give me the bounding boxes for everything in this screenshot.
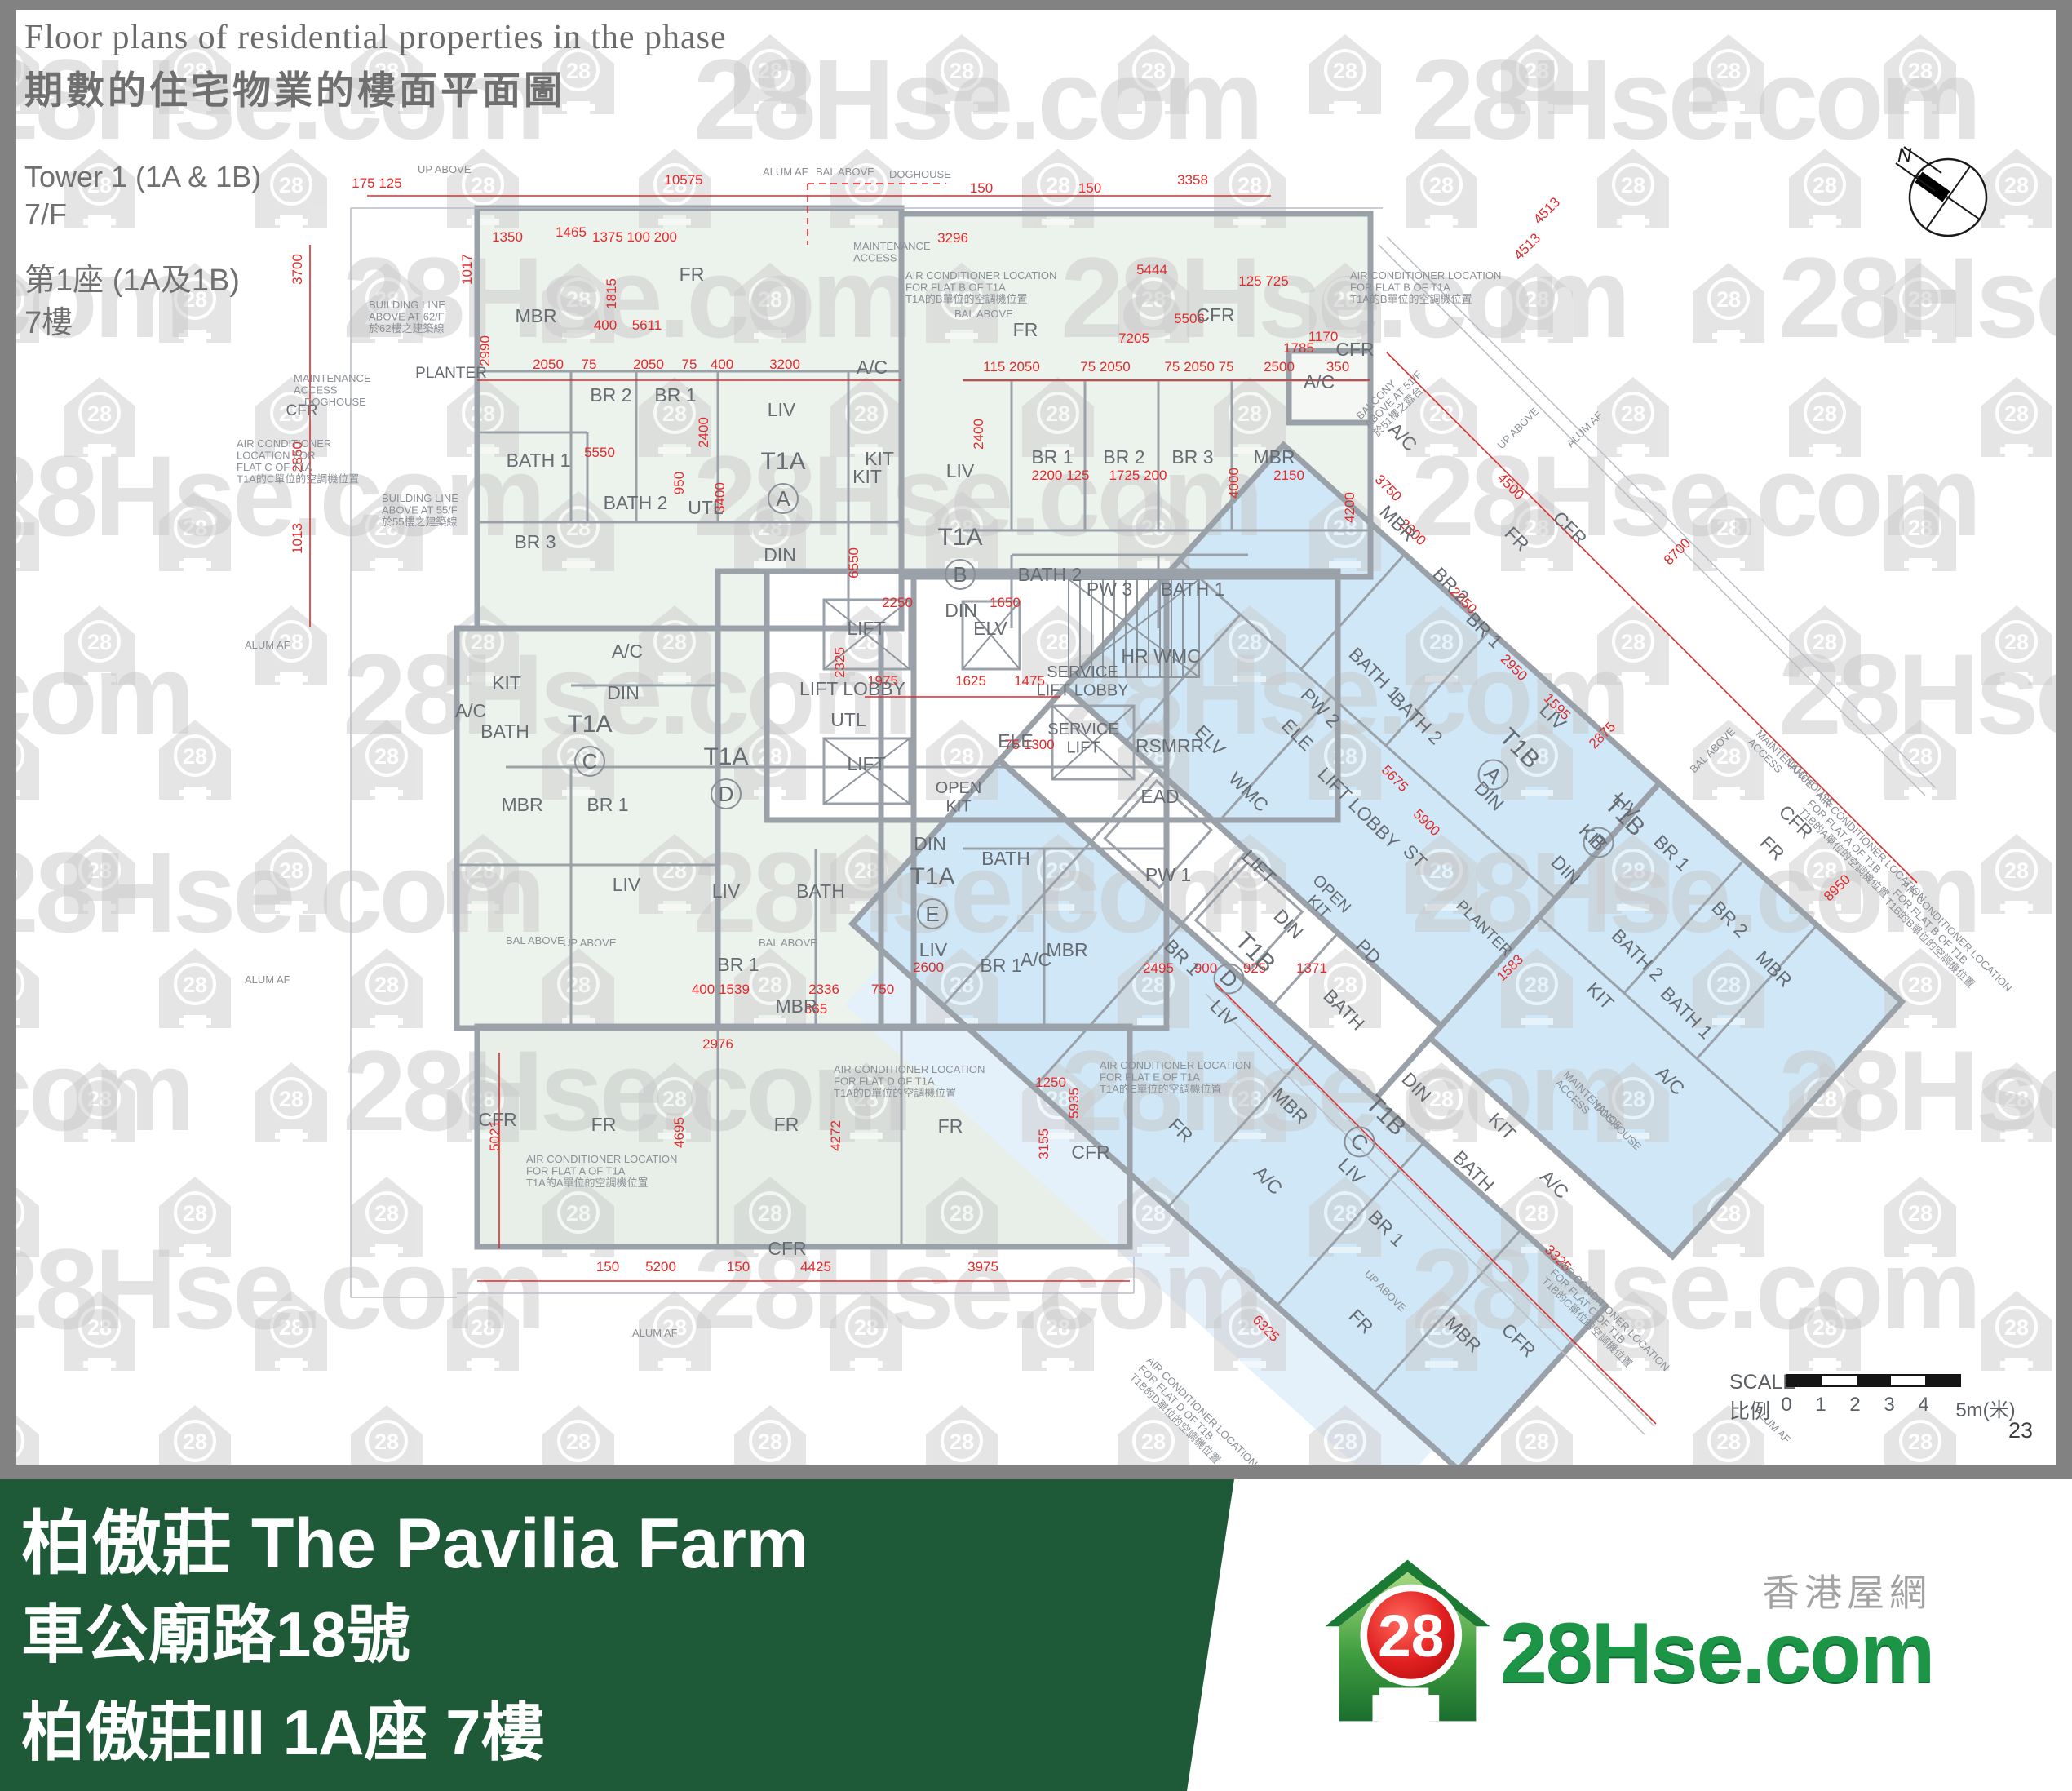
room-label: FR bbox=[591, 1114, 617, 1135]
watermark-house-icon: 28 bbox=[1981, 149, 2052, 228]
dim-label: 1815 bbox=[604, 278, 619, 309]
dim-label: 400 bbox=[594, 317, 617, 333]
dim-label: 1539 bbox=[719, 982, 750, 997]
watermark-house-number: 28 bbox=[2004, 1315, 2029, 1340]
watermark-brand-text: 28Hse.com bbox=[0, 828, 542, 956]
rect bbox=[83, 1361, 116, 1368]
rect bbox=[1329, 1247, 1361, 1253]
watermark-house-number: 28 bbox=[1237, 401, 1262, 426]
dim-label: 3700 bbox=[290, 254, 305, 285]
dim-label: 5550 bbox=[584, 445, 615, 460]
rect bbox=[1425, 1361, 1458, 1368]
room-label: BATH bbox=[981, 848, 1030, 869]
dim-label: 3975 bbox=[967, 1259, 998, 1275]
note-label: BAL ABOVE bbox=[816, 166, 874, 178]
room-label: LIV bbox=[712, 880, 741, 902]
dim-label: 4695 bbox=[671, 1117, 687, 1148]
rect bbox=[562, 561, 595, 568]
dim-label: 5200 bbox=[645, 1259, 676, 1275]
watermark-house-number: 28 bbox=[471, 173, 495, 197]
rect bbox=[658, 1361, 691, 1368]
rect bbox=[1712, 790, 1745, 796]
note-label: DOGHOUSE bbox=[304, 396, 366, 408]
rect bbox=[1712, 333, 1745, 339]
room-label: BATH 1 bbox=[507, 450, 571, 471]
watermark-house-number: 28 bbox=[1525, 973, 1549, 997]
room-label: BR 1 bbox=[717, 954, 759, 975]
unit-badge-tower: T1A bbox=[703, 743, 748, 770]
dim-label: 4200 bbox=[1342, 492, 1357, 523]
scale-label-zh: 比例 bbox=[1729, 1395, 1770, 1425]
room-label: PW 3 bbox=[1087, 579, 1132, 600]
watermark-brand-text: 28Hse.com bbox=[343, 1026, 909, 1155]
watermark-brand-text: 28Hse.com bbox=[1411, 432, 1977, 560]
dim-label: 2495 bbox=[1143, 960, 1174, 976]
room-label: KIT bbox=[492, 672, 521, 694]
watermark-house-number: 28 bbox=[1716, 1430, 1741, 1454]
rect bbox=[2000, 1361, 2033, 1368]
watermark-house-number: 28 bbox=[950, 1201, 974, 1226]
dim-label: 75 2050 75 bbox=[1164, 359, 1233, 375]
watermark-house-icon: 28 bbox=[1309, 34, 1381, 114]
room-label: EAD bbox=[1140, 786, 1179, 807]
watermark-house-number: 28 bbox=[1141, 1430, 1166, 1454]
dim-label: 1017 bbox=[459, 254, 475, 285]
unit-badge-tower: T1A bbox=[910, 863, 954, 890]
dim-label: 75 2050 bbox=[1080, 359, 1130, 375]
dim-label: 75 bbox=[582, 357, 597, 372]
28hse-logo[interactable]: 28 28Hse.com bbox=[1320, 1539, 2054, 1743]
dim-label: 7205 bbox=[1118, 330, 1149, 346]
rect bbox=[945, 333, 978, 339]
rect bbox=[275, 219, 308, 225]
watermark-brand-text: 28Hse.com bbox=[1411, 35, 1977, 163]
room-label: BR 2 bbox=[590, 384, 631, 406]
unit-badge-flat: B bbox=[953, 562, 967, 587]
rect bbox=[275, 1133, 308, 1139]
unit-badge-flat: E bbox=[925, 902, 939, 926]
room-label: UTL bbox=[830, 709, 866, 730]
watermark-house-number: 28 bbox=[471, 401, 495, 426]
rect bbox=[1712, 561, 1745, 568]
watermark-house-number: 28 bbox=[566, 1430, 591, 1454]
note-label: BUILDING LINEABOVE AT 55/F於55樓之建築線 bbox=[382, 492, 458, 528]
room-label: FR bbox=[1013, 319, 1038, 340]
watermark-house-number: 28 bbox=[1908, 1201, 1933, 1226]
watermark-house-number: 28 bbox=[566, 973, 591, 997]
watermark-brand-text: 28Hse.com bbox=[0, 1225, 542, 1353]
dim-label: 150 bbox=[970, 180, 993, 196]
watermark-house-number: 28 bbox=[1046, 173, 1070, 197]
room-label: FR bbox=[938, 1115, 963, 1137]
room-label: LIV bbox=[919, 939, 948, 960]
room-label: BATH bbox=[796, 880, 845, 902]
watermark-house-number: 28 bbox=[1333, 59, 1357, 83]
unit-badge-flat: A bbox=[776, 486, 790, 511]
room-label: A/C bbox=[857, 357, 888, 378]
rect bbox=[658, 904, 691, 911]
watermark-house-icon: 28 bbox=[351, 948, 423, 1028]
note-label: ALUM AF bbox=[245, 639, 290, 651]
watermark-house-number: 28 bbox=[1333, 1430, 1357, 1454]
watermark-house-number: 28 bbox=[1046, 401, 1070, 426]
rect bbox=[1521, 790, 1553, 796]
compass-north-label: N bbox=[1897, 144, 1912, 166]
dim-label: 125 725 bbox=[1238, 273, 1288, 289]
watermark-house-number: 28 bbox=[374, 973, 399, 997]
watermark-house-number: 28 bbox=[1813, 401, 1837, 426]
rect bbox=[1233, 219, 1266, 225]
dim-label: 950 bbox=[671, 472, 687, 494]
room-label: FR bbox=[774, 1114, 799, 1135]
dim-label: 3358 bbox=[1177, 172, 1208, 188]
rect bbox=[179, 790, 211, 796]
rect bbox=[1809, 1361, 1841, 1368]
watermark-house-icon: 28 bbox=[255, 1062, 327, 1142]
watermark-house-number: 28 bbox=[854, 401, 879, 426]
watermark-house-number: 28 bbox=[1237, 173, 1262, 197]
watermark-house-number: 28 bbox=[1716, 973, 1741, 997]
room-label: WMC bbox=[1153, 645, 1200, 667]
watermark-house-number: 28 bbox=[1621, 401, 1645, 426]
room-label: PW 1 bbox=[1145, 864, 1191, 885]
room-label: CFR bbox=[768, 1238, 806, 1259]
watermark-house-number: 28 bbox=[662, 858, 687, 883]
page-number: 23 bbox=[2008, 1418, 2033, 1443]
dim-label: 2990 bbox=[477, 335, 493, 366]
dim-label: 2500 bbox=[1264, 359, 1295, 375]
note-label: ALUM AF bbox=[763, 166, 808, 178]
room-label: MBR bbox=[775, 995, 817, 1017]
room-label: DIN bbox=[764, 544, 796, 565]
unit-badge-flat: D bbox=[719, 782, 734, 806]
note-label: ALUM AF bbox=[632, 1327, 678, 1339]
room-label: BR 3 bbox=[1171, 446, 1213, 468]
note-label: UP ABOVE bbox=[418, 163, 472, 175]
scale-ticks: 0 1 2 3 4 5m(米) bbox=[1769, 1394, 2030, 1422]
watermark-house-number: 28 bbox=[1429, 401, 1454, 426]
room-label: BR 1 bbox=[1031, 446, 1073, 468]
watermark-house-number: 28 bbox=[1525, 1201, 1549, 1226]
room-label: ELV bbox=[973, 618, 1007, 639]
dim-label: 1725 200 bbox=[1109, 468, 1167, 483]
watermark-house-number: 28 bbox=[1525, 1430, 1549, 1454]
rect bbox=[658, 219, 691, 225]
property-address: 車公廟路18號 bbox=[21, 1584, 410, 1675]
rect bbox=[1617, 219, 1649, 225]
dim-label: 1375 100 200 bbox=[592, 229, 677, 245]
dim-label: 2200 125 bbox=[1032, 468, 1090, 483]
watermark-house-number: 28 bbox=[1429, 173, 1454, 197]
rect bbox=[2000, 219, 2033, 225]
rect bbox=[1042, 219, 1074, 225]
dim-label: 3296 bbox=[937, 230, 968, 246]
note-label: UP ABOVE bbox=[563, 937, 617, 949]
rect bbox=[562, 104, 595, 111]
watermark-house-number: 28 bbox=[2004, 173, 2029, 197]
room-label: MBR bbox=[1046, 939, 1087, 960]
watermark-house-number: 28 bbox=[279, 173, 303, 197]
dim-label: 2600 bbox=[913, 960, 944, 975]
room-label: CFR bbox=[1196, 304, 1234, 326]
dim-label: 2400 bbox=[971, 419, 986, 450]
dim-label: 1650 bbox=[990, 595, 1021, 610]
watermark-house-number: 28 bbox=[566, 59, 591, 83]
dim-label: 750 bbox=[871, 982, 894, 997]
room-label: BR 2 bbox=[1103, 446, 1144, 468]
dim-label: 1250 bbox=[1035, 1075, 1066, 1090]
note-label: ALUM AF bbox=[245, 973, 290, 986]
scale-tick: 1 bbox=[1804, 1394, 1838, 1422]
watermark-house-number: 28 bbox=[374, 1201, 399, 1226]
unit-badge-flat: C bbox=[582, 749, 598, 774]
page-title-zh: 期數的住宅物業的樓面平面圖 bbox=[24, 59, 565, 115]
watermark-house-icon: 28 bbox=[1981, 834, 2052, 914]
room-label: BATH 2 bbox=[1018, 564, 1082, 585]
room-label: LIFT bbox=[847, 753, 885, 774]
dim-label: 6550 bbox=[846, 547, 861, 579]
watermark-house-number: 28 bbox=[1716, 287, 1741, 312]
rect bbox=[179, 1018, 211, 1025]
watermark-brand-text: 28Hse.com bbox=[693, 35, 1260, 163]
room-label: BATH 2 bbox=[604, 492, 668, 513]
dim-label: 1371 bbox=[1296, 960, 1327, 976]
dim-label: 5611 bbox=[632, 317, 662, 333]
dim-label: 10575 bbox=[664, 172, 702, 188]
watermark-house-number: 28 bbox=[183, 1201, 207, 1226]
room-label: A/C bbox=[1304, 371, 1335, 392]
watermark-house-number: 28 bbox=[1813, 173, 1837, 197]
property-block-floor: 柏傲莊III 1A座 7樓 bbox=[21, 1682, 544, 1773]
room-label: HR bbox=[1121, 645, 1148, 667]
room-label: LIV bbox=[613, 874, 641, 895]
room-label: A/C bbox=[455, 700, 486, 721]
dim-label: 400 bbox=[692, 982, 715, 997]
watermark-house-icon: 28 bbox=[1981, 377, 2052, 457]
dim-label: 5444 bbox=[1136, 262, 1167, 277]
dim-label: 2050 bbox=[633, 357, 664, 372]
dim-label: 4000 bbox=[1226, 468, 1242, 499]
dim-label: 150 bbox=[1078, 180, 1101, 196]
rect bbox=[850, 1361, 883, 1368]
rect bbox=[83, 219, 116, 225]
rect bbox=[1329, 104, 1361, 111]
watermark-house-number: 28 bbox=[1908, 1430, 1933, 1454]
floor-label: 7/F bbox=[24, 197, 67, 232]
note-label: BUILDING LINEABOVE AT 62/F於62樓之建築線 bbox=[369, 299, 445, 335]
rect bbox=[370, 561, 403, 568]
rect bbox=[179, 561, 211, 568]
dim-label: 3155 bbox=[1036, 1128, 1051, 1159]
watermark-house-number: 28 bbox=[566, 1201, 591, 1226]
dim-label: 3750 bbox=[1372, 472, 1405, 504]
logo-brand-text: 28Hse.com bbox=[1500, 1605, 1933, 1702]
watermark-house-number: 28 bbox=[758, 973, 782, 997]
watermark-house-number: 28 bbox=[950, 744, 974, 769]
dim-label: 2976 bbox=[702, 1036, 733, 1052]
room-label: ELE bbox=[998, 730, 1033, 751]
28hse-house-icon: 28 bbox=[1320, 1558, 1495, 1725]
dim-label: 2400 bbox=[696, 417, 711, 448]
rect bbox=[2000, 447, 2033, 454]
rect bbox=[275, 676, 308, 682]
rect bbox=[1425, 219, 1458, 225]
room-label: PLANTER bbox=[415, 365, 487, 382]
rect bbox=[1521, 561, 1553, 568]
watermark-house-number: 28 bbox=[758, 1430, 782, 1454]
dim-label: 115 2050 bbox=[983, 359, 1040, 375]
dim-label: 4513 bbox=[1530, 194, 1563, 227]
rect bbox=[1521, 1018, 1553, 1025]
rect bbox=[754, 790, 786, 796]
watermark-brand-text: 28Hse.com bbox=[0, 1026, 191, 1155]
dim-label: 2050 bbox=[533, 357, 564, 372]
logo-tagline: 香港屋網 bbox=[1762, 1563, 1932, 1617]
room-label: LIFT LOBBY bbox=[799, 678, 905, 699]
room-label: A/C bbox=[1021, 949, 1051, 970]
room-label: BR 1 bbox=[980, 955, 1021, 976]
room-label: LIV bbox=[768, 399, 796, 420]
room-label: CFR bbox=[1335, 339, 1374, 360]
rect bbox=[370, 1018, 403, 1025]
rect bbox=[1904, 561, 1937, 568]
dim-label: 150 bbox=[727, 1259, 750, 1275]
room-label: BR 3 bbox=[514, 531, 556, 552]
scale-bar-segments bbox=[1786, 1374, 1961, 1387]
room-label: DIN bbox=[914, 833, 946, 854]
dim-label: 2250 bbox=[882, 595, 913, 610]
watermark-house-number: 28 bbox=[87, 401, 112, 426]
rect bbox=[275, 1361, 308, 1368]
watermark-house-number: 28 bbox=[1908, 973, 1933, 997]
room-label: MBR bbox=[515, 305, 556, 326]
watermark-brand-text: 28Hse.com bbox=[1778, 233, 2072, 361]
dim-label: 2325 bbox=[832, 647, 848, 678]
dim-label: 3200 bbox=[769, 357, 800, 372]
room-label: MBR bbox=[1253, 446, 1295, 468]
unit-badge-tower: T1A bbox=[567, 711, 612, 738]
watermark-brand-text: 28Hse.com bbox=[1411, 1225, 1977, 1353]
floor-label-zh: 7樓 bbox=[24, 297, 73, 342]
watermark-house-number: 28 bbox=[183, 1430, 207, 1454]
watermark-house-number: 28 bbox=[950, 1430, 974, 1454]
watermark-house-number: 28 bbox=[374, 1430, 399, 1454]
rect bbox=[1329, 561, 1361, 568]
dim-label: 150 bbox=[596, 1259, 619, 1275]
note-label: DOGHOUSE bbox=[889, 168, 951, 180]
room-label: BATH 1 bbox=[1161, 579, 1225, 600]
watermark-house-number: 28 bbox=[758, 1201, 782, 1226]
room-label: BR 1 bbox=[587, 794, 628, 815]
dim-label: 1465 bbox=[556, 224, 587, 240]
scale-tick: 4 bbox=[1906, 1394, 1941, 1422]
room-label: CFR bbox=[1071, 1142, 1109, 1163]
rect bbox=[1809, 219, 1841, 225]
room-label: CFR bbox=[478, 1109, 516, 1130]
room-label: BR 1 bbox=[654, 384, 696, 406]
room-label: FR bbox=[680, 264, 705, 285]
rect bbox=[370, 790, 403, 796]
logo-badge-number: 28 bbox=[1378, 1603, 1444, 1669]
dim-label: 1625 bbox=[955, 673, 986, 689]
rect bbox=[467, 219, 499, 225]
watermark-brand-text: 28Hse.com bbox=[1778, 630, 2072, 758]
dim-label: 1013 bbox=[290, 523, 305, 554]
property-name: 柏傲莊 The Pavilia Farm bbox=[21, 1486, 808, 1588]
scale-bar: SCALE 比例 0 1 2 3 4 5m(米) bbox=[1729, 1369, 2007, 1426]
unit-badge-tower: T1A bbox=[937, 524, 982, 551]
dim-label: 1170 bbox=[1308, 329, 1339, 344]
room-label: A/C bbox=[612, 641, 643, 662]
rect bbox=[467, 1361, 499, 1368]
dim-label: 75 bbox=[682, 357, 697, 372]
dim-label: 4272 bbox=[828, 1120, 843, 1151]
rect bbox=[850, 219, 883, 225]
watermark-house-number: 28 bbox=[2004, 858, 2029, 883]
scale-tick: 2 bbox=[1838, 1394, 1872, 1422]
tower-label-zh: 第1座 (1A及1B) bbox=[24, 255, 240, 299]
page-title: Floor plans of residential properties in… bbox=[24, 18, 727, 57]
note-label: MAINTENANCEACCESS bbox=[294, 372, 371, 397]
rect bbox=[1137, 561, 1170, 568]
room-label: UTL bbox=[688, 497, 724, 518]
dim-label: 400 bbox=[711, 357, 733, 372]
dim-label: 175 125 bbox=[352, 175, 401, 191]
rect bbox=[1233, 1361, 1266, 1368]
room-label: DIN bbox=[945, 600, 977, 621]
watermark-house-icon: 28 bbox=[1981, 1291, 2052, 1371]
rect bbox=[658, 447, 691, 454]
page: 2828282828282828282828282828282828282828… bbox=[0, 0, 2072, 1791]
scale-tick: 0 bbox=[1769, 1394, 1804, 1422]
room-label: MBR bbox=[501, 794, 542, 815]
note-label: BAL ABOVE bbox=[759, 937, 817, 949]
watermark-house-number: 28 bbox=[2004, 401, 2029, 426]
rect bbox=[1904, 1018, 1937, 1025]
watermark-house-icon: 28 bbox=[159, 948, 231, 1028]
tower-label: Tower 1 (1A & 1B) bbox=[24, 160, 261, 194]
dim-label: 2150 bbox=[1273, 468, 1304, 483]
watermark-house-number: 28 bbox=[1621, 173, 1645, 197]
note-label: BAL ABOVE bbox=[506, 934, 564, 946]
unit-badge-tower: T1A bbox=[760, 448, 805, 475]
watermark-house-number: 28 bbox=[279, 1087, 303, 1111]
scale-tick: 3 bbox=[1872, 1394, 1906, 1422]
dim-label: 1350 bbox=[492, 229, 523, 245]
room-label: LIFT bbox=[847, 618, 885, 639]
room-label: DIN bbox=[607, 682, 640, 703]
dim-label: 4425 bbox=[800, 1259, 831, 1275]
room-label: BATH bbox=[480, 720, 529, 742]
dim-label: 5935 bbox=[1066, 1088, 1082, 1119]
watermark-house-icon: 28 bbox=[1693, 263, 1764, 343]
room-label: LIV bbox=[946, 460, 975, 481]
rect bbox=[1042, 1361, 1074, 1368]
note-label: BAL ABOVE bbox=[954, 308, 1013, 320]
rect bbox=[2000, 904, 2033, 911]
watermark-brand-text: 28Hse.com bbox=[0, 630, 191, 758]
watermark-house-number: 28 bbox=[1141, 973, 1166, 997]
room-label: SERVICELIFT LOBBY bbox=[1036, 663, 1128, 699]
room-label: KIT bbox=[852, 466, 882, 487]
watermark-brand-text: 28Hse.com bbox=[343, 233, 909, 361]
watermark-house-number: 28 bbox=[183, 973, 207, 997]
